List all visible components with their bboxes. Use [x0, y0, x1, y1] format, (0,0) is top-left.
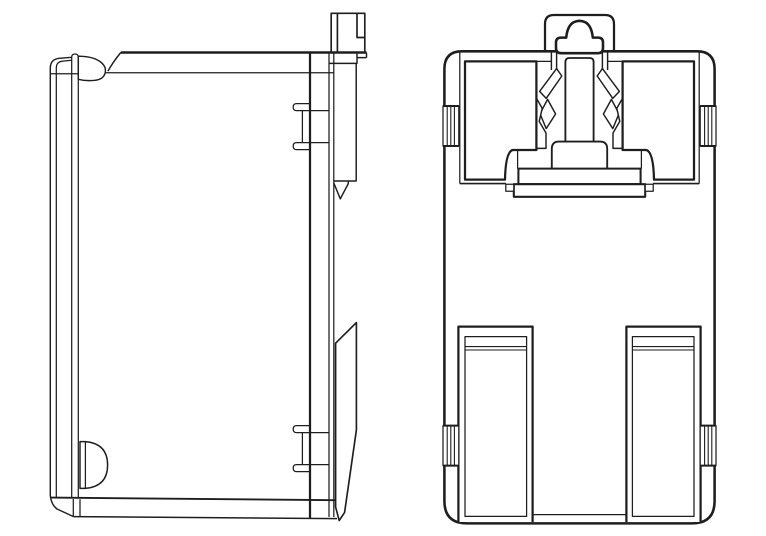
grip-slot — [302, 111, 329, 143]
clip-foot-step-left — [506, 184, 514, 191]
grip-finger — [293, 143, 310, 150]
drawing-canvas — [0, 0, 766, 536]
clip-foot-step-right — [645, 184, 653, 191]
slider-collar — [329, 53, 367, 64]
grip-slot — [302, 433, 329, 465]
grip-tab-left-top — [443, 106, 459, 146]
foot-outer — [458, 327, 532, 522]
clip-foot-lower — [514, 184, 645, 197]
top-notch-diagonal — [108, 53, 121, 72]
d-notch-outline — [80, 442, 108, 489]
clip-pedestal — [552, 142, 607, 169]
bottom-edge-upper — [51, 498, 335, 501]
technical-drawing — [0, 0, 766, 536]
slider-body — [334, 63, 356, 198]
latch-hat — [556, 21, 603, 53]
top-bump — [78, 56, 105, 80]
grip-tab-right-top — [700, 106, 716, 146]
foot-outer — [626, 327, 700, 522]
grip-tab-left-bottom — [443, 426, 459, 466]
bottom-chamfer — [50, 496, 73, 517]
grip-finger — [293, 104, 310, 111]
foot-left — [458, 327, 532, 522]
rear-view — [443, 15, 716, 523]
foot-right — [626, 327, 700, 522]
slider-tab — [331, 13, 365, 52]
front-panel-inner-edge — [56, 60, 71, 498]
grip-finger — [293, 465, 310, 472]
clip-foot-upper — [518, 169, 640, 185]
rail-hook — [336, 323, 357, 521]
grip-tab-right-bottom — [700, 426, 716, 466]
d-notch — [80, 442, 108, 489]
side-view — [50, 13, 366, 520]
bottom-edge-lower — [74, 517, 338, 519]
front-panel-outer-edge — [50, 57, 71, 496]
front-strip-cap — [72, 54, 79, 57]
grip-finger — [293, 426, 310, 433]
